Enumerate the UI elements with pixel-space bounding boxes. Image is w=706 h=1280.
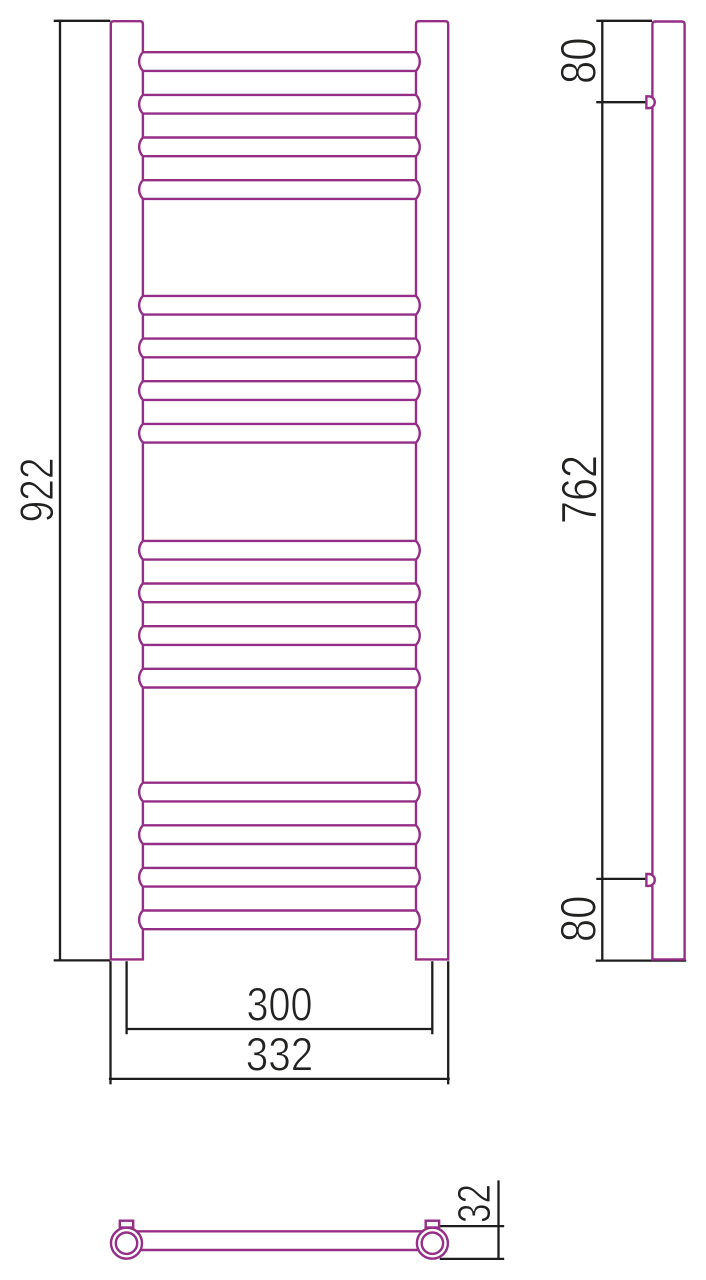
svg-text:922: 922 — [11, 458, 64, 523]
svg-text:332: 332 — [246, 1029, 314, 1082]
svg-text:300: 300 — [247, 979, 313, 1032]
svg-text:762: 762 — [551, 455, 608, 524]
svg-text:80: 80 — [550, 896, 607, 943]
svg-text:80: 80 — [550, 38, 607, 85]
svg-text:32: 32 — [448, 1184, 500, 1223]
